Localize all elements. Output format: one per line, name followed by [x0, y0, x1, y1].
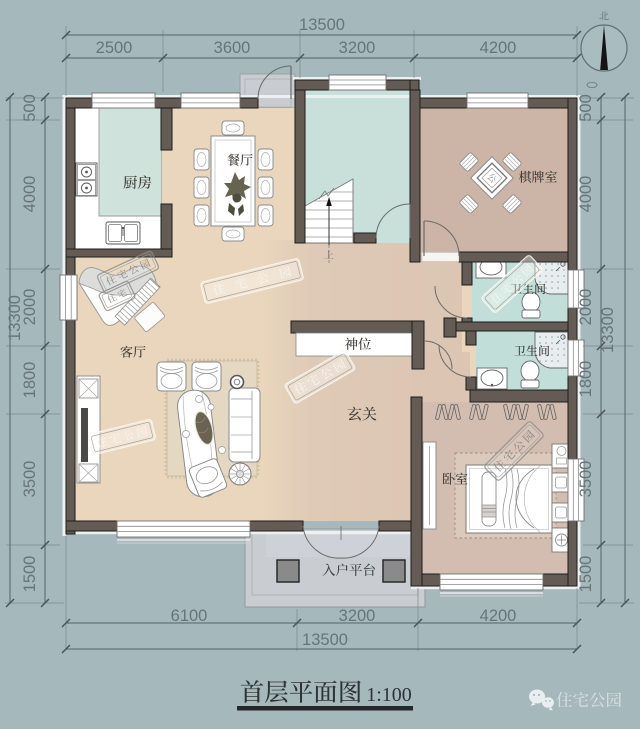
svg-text:2000: 2000 — [577, 289, 595, 326]
svg-text:3600: 3600 — [214, 39, 251, 57]
svg-text:6100: 6100 — [171, 607, 208, 625]
svg-text:1800: 1800 — [577, 361, 595, 398]
svg-text:3200: 3200 — [339, 607, 376, 625]
svg-text:1500: 1500 — [21, 556, 39, 593]
svg-text:4200: 4200 — [480, 39, 517, 57]
svg-text:4200: 4200 — [480, 607, 517, 625]
svg-text:13300: 13300 — [599, 307, 617, 353]
svg-text:1500: 1500 — [577, 556, 595, 593]
svg-text:4000: 4000 — [21, 176, 39, 213]
svg-text:1800: 1800 — [21, 362, 39, 399]
svg-text:13500: 13500 — [299, 16, 345, 34]
svg-text:2000: 2000 — [21, 289, 39, 326]
svg-text:2500: 2500 — [96, 39, 133, 57]
svg-text:1:100: 1:100 — [366, 684, 412, 706]
svg-text:500: 500 — [21, 94, 39, 122]
svg-text:13500: 13500 — [302, 631, 348, 649]
svg-text:4000: 4000 — [577, 176, 595, 213]
svg-text:3500: 3500 — [21, 461, 39, 498]
svg-text:500: 500 — [577, 94, 595, 122]
svg-text:3500: 3500 — [577, 461, 595, 498]
svg-text:3200: 3200 — [339, 39, 376, 57]
